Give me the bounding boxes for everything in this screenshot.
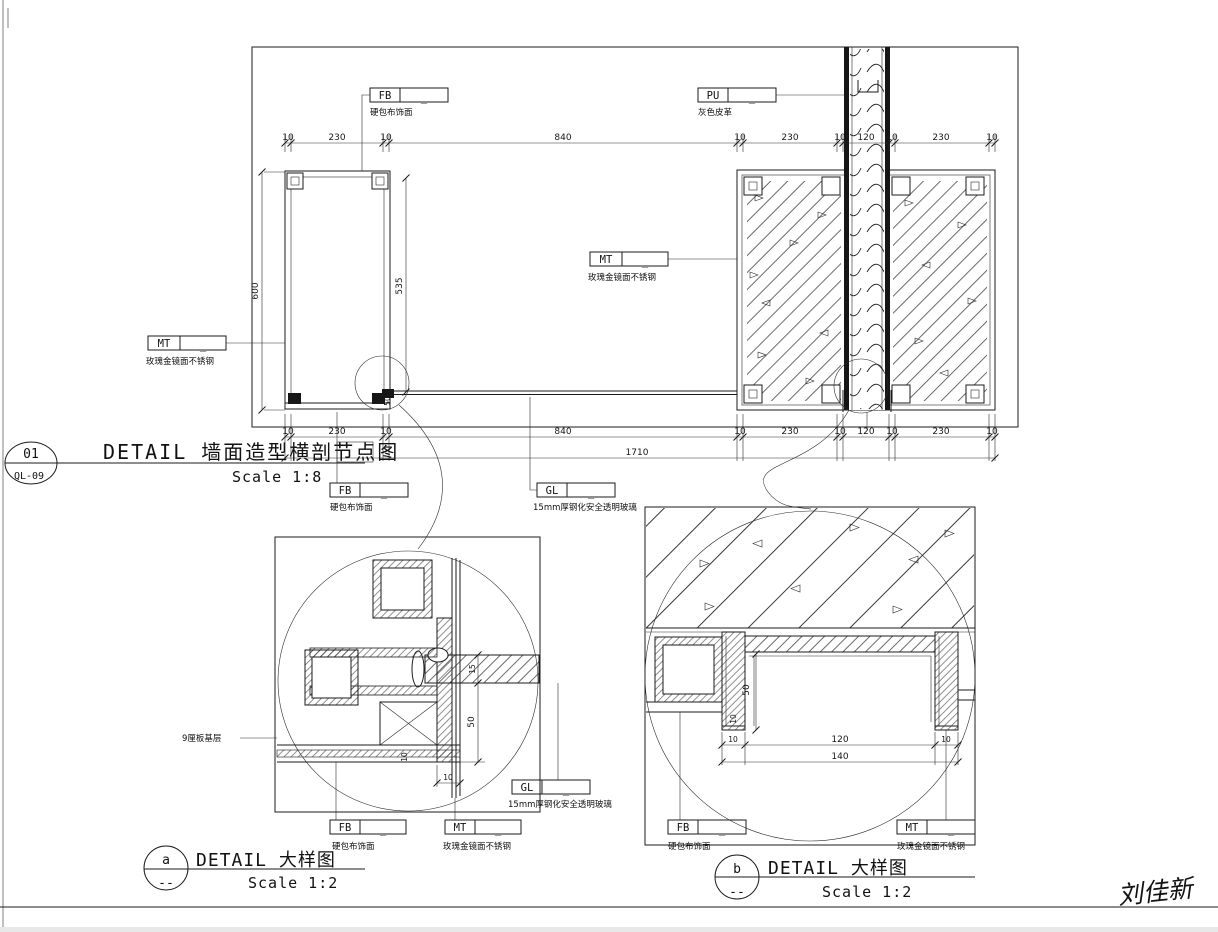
material-label-fb-top: FB _ 硬包布饰面 — [362, 88, 448, 171]
fb-value-2: _ — [381, 487, 388, 499]
fb-desc-2: 硬包布饰面 — [330, 502, 373, 513]
dim-bot-7: 120 — [857, 427, 874, 437]
detail-b-dims: 50 10 10 120 10 140 — [719, 651, 962, 766]
gl-desc-a: 15mm厚钢化安全透明玻璃 — [508, 799, 612, 810]
detail-b-num: b — [733, 862, 741, 877]
detail-a-fb-label: FB _ 硬包布饰面 — [330, 762, 406, 852]
mt-desc-2: 玫瑰金镜面不锈钢 — [146, 356, 214, 367]
main-title-ref: QL-09 — [14, 471, 44, 482]
center-column — [844, 47, 890, 410]
mt-code-b: MT — [906, 822, 919, 834]
dim-top-6: 10 — [834, 133, 846, 143]
dim-bot-5: 230 — [781, 427, 798, 437]
dim-top-9: 230 — [932, 133, 949, 143]
material-label-mt-left: MT _ 玫瑰金镜面不锈钢 — [146, 336, 285, 367]
dim-top-2: 10 — [380, 133, 392, 143]
main-title-block: 01 QL-09 DETAIL 墙面造型横剖节点图 Scale 1:8 — [5, 440, 399, 486]
board-note: 9厘板基层 — [182, 733, 221, 744]
drawing-sheet: FB _ 硬包布饰面 PU _ 灰色皮革 MT _ 玫瑰金镜面不锈钢 — [0, 0, 1218, 927]
dim-b-jamb: 10 — [729, 714, 738, 724]
mt-value-2: _ — [200, 340, 207, 352]
detail-b-linework — [646, 508, 975, 730]
fb-desc: 硬包布饰面 — [370, 107, 413, 118]
gl-code-a: GL — [521, 782, 534, 794]
dim-b-depth: 50 — [742, 684, 752, 696]
mt-code-2: MT — [158, 338, 171, 350]
mt-value-b: _ — [948, 824, 955, 836]
dim-top-3: 840 — [554, 133, 571, 143]
material-label-gl-lower: GL _ 15mm厚钢化安全透明玻璃 — [530, 397, 637, 513]
dim-b-left: 10 — [728, 735, 738, 744]
dim-vertical-left: 600 535 50 — [251, 169, 410, 414]
dim-bot-8: 10 — [886, 427, 898, 437]
dim-b-mid: 120 — [831, 735, 848, 745]
dim-top-8: 10 — [886, 133, 898, 143]
left-wall-plan — [285, 171, 394, 409]
detail-b-title: b -- DETAIL 大样图 Scale 1:2 — [715, 855, 975, 901]
dim-inner-height: 535 — [395, 277, 405, 294]
mt-code-a: MT — [454, 822, 467, 834]
mt-value-a: _ — [495, 824, 502, 836]
fb-desc-a: 硬包布饰面 — [332, 841, 375, 852]
dim-top-5: 230 — [781, 133, 798, 143]
dim-b-total: 140 — [831, 752, 848, 762]
dim-top-1: 230 — [328, 133, 345, 143]
fb-value-a: _ — [380, 824, 387, 836]
mt-desc-a: 玫瑰金镜面不锈钢 — [443, 841, 511, 852]
dim-bot-4: 10 — [734, 427, 746, 437]
dim-height: 600 — [251, 282, 261, 299]
detail-b-mt-label: MT _ 玫瑰金镜面不锈钢 — [897, 730, 975, 852]
detail-a-ref: -- — [158, 876, 174, 891]
main-title-name: DETAIL 墙面造型横剖节点图 — [103, 440, 399, 464]
dim-glass-offset: 50 — [383, 396, 392, 406]
gl-desc: 15mm厚钢化安全透明玻璃 — [533, 502, 637, 513]
dim-total: 1710 — [626, 448, 649, 458]
dim-bot-6: 10 — [834, 427, 846, 437]
mt-value: _ — [642, 256, 649, 268]
dim-bot-10: 10 — [986, 427, 998, 437]
dim-bot-2: 10 — [380, 427, 392, 437]
cad-canvas: FB _ 硬包布饰面 PU _ 灰色皮革 MT _ 玫瑰金镜面不锈钢 — [0, 0, 1218, 927]
fb-code-a: FB — [339, 822, 352, 834]
gl-code: GL — [546, 485, 559, 497]
gl-value-a: _ — [563, 784, 570, 796]
detail-b-ref: -- — [729, 885, 745, 900]
fb-code-b: FB — [677, 822, 690, 834]
dim-a-gap: 10 — [443, 773, 453, 782]
detail-a-gl-label: GL _ 15mm厚钢化安全透明玻璃 — [508, 683, 612, 810]
pu-code: PU — [707, 90, 720, 102]
detail-b-fb-label: FB _ 硬包布饰面 — [668, 712, 746, 852]
detail-b-drawing: 50 10 10 120 10 140 FB _ 硬包布饰面 MT _ 玫瑰金镜… — [645, 507, 975, 901]
pu-desc: 灰色皮革 — [698, 107, 733, 118]
material-label-mt-mid: MT _ 玫瑰金镜面不锈钢 — [588, 252, 737, 283]
glass-partition-line — [390, 391, 737, 395]
main-title-scale: Scale 1:8 — [232, 468, 322, 486]
pu-value: _ — [749, 92, 756, 104]
dim-a-board: 10 — [400, 752, 409, 762]
detail-b-scale: Scale 1:2 — [822, 883, 912, 901]
detail-a-num: a — [162, 853, 170, 868]
main-section-drawing: FB _ 硬包布饰面 PU _ 灰色皮革 MT _ 玫瑰金镜面不锈钢 — [5, 47, 1018, 549]
detail-a-board-note: 9厘板基层 — [182, 733, 277, 744]
gl-value: _ — [588, 487, 595, 499]
fb-desc-b: 硬包布饰面 — [668, 841, 711, 852]
dim-a-depth: 50 — [467, 716, 477, 728]
fb-value-b: _ — [719, 824, 726, 836]
dim-bot-9: 230 — [932, 427, 949, 437]
dim-a-glass: 15 — [468, 664, 477, 674]
detail-a-title: a -- DETAIL 大样图 Scale 1:2 — [144, 846, 365, 892]
material-label-pu-top: PU _ 灰色皮革 — [698, 88, 845, 118]
fb-code-2: FB — [339, 485, 352, 497]
fb-value: _ — [421, 92, 428, 104]
dim-top-7: 120 — [857, 133, 874, 143]
mt-desc-b: 玫瑰金镜面不锈钢 — [897, 841, 965, 852]
detail-a-drawing: 15 50 10 10 GL _ 15mm厚钢化安全透明玻璃 9厘板基层 FB … — [144, 537, 612, 892]
mt-code: MT — [600, 254, 613, 266]
detail-a-scale: Scale 1:2 — [248, 874, 338, 892]
dim-row-top: 10 230 10 840 10 230 10 120 10 230 10 — [282, 133, 999, 152]
dim-bot-3: 840 — [554, 427, 571, 437]
mt-desc: 玫瑰金镜面不锈钢 — [588, 272, 656, 283]
detail-b-name: DETAIL 大样图 — [768, 858, 908, 879]
dim-bot-0: 10 — [282, 427, 294, 437]
dim-top-4: 10 — [734, 133, 746, 143]
main-title-num: 01 — [23, 447, 39, 462]
designer-signature: 刘佳新 — [1116, 873, 1197, 910]
dim-top-0: 10 — [282, 133, 294, 143]
detail-a-name: DETAIL 大样图 — [196, 850, 336, 871]
dim-top-10: 10 — [986, 133, 998, 143]
fb-code: FB — [379, 90, 392, 102]
